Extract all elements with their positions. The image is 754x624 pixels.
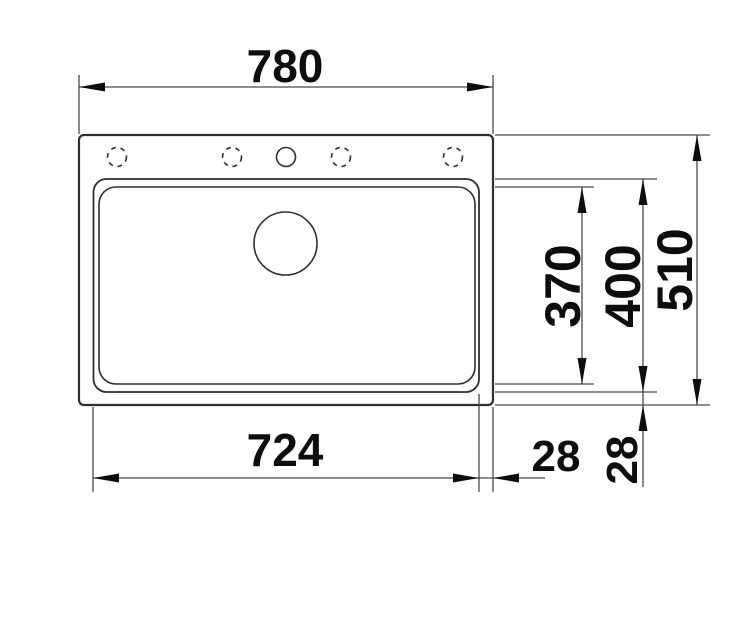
dimension-label-28-horizontal: 28	[532, 432, 581, 481]
dimension-overall-width: 780	[79, 40, 493, 134]
drain-hole	[254, 212, 317, 275]
bowl-inner-rim	[99, 187, 475, 384]
sink-outer-edge	[79, 135, 493, 405]
dimension-bowl-inner-depth: 370	[495, 187, 594, 384]
tap-hole-optional-3	[332, 148, 351, 167]
arrow-up-icon	[639, 179, 648, 205]
tap-hole-optional-2	[223, 148, 242, 167]
arrow-left-icon	[79, 83, 105, 92]
arrow-right-icon	[453, 474, 479, 483]
tap-hole-optional-4	[444, 148, 463, 167]
bowl-outer-rim	[94, 179, 480, 392]
arrow-down-icon	[639, 366, 648, 392]
dimension-bowl-width: 724 28	[93, 394, 580, 492]
dimension-label-28-vertical: 28	[598, 436, 647, 485]
dimension-ledge-vertical: 28	[598, 392, 648, 487]
arrow-up-icon	[639, 405, 648, 431]
arrow-up-icon	[693, 135, 702, 161]
tap-hole-row	[108, 148, 463, 167]
dimension-label-400: 400	[595, 244, 651, 327]
dimension-label-780: 780	[247, 40, 324, 92]
arrow-right-icon	[467, 83, 493, 92]
tap-hole-drilled-center	[277, 148, 296, 167]
sink-dimension-drawing: 780 724 28 510	[0, 0, 754, 624]
arrow-up-icon	[578, 187, 587, 213]
arrow-down-icon	[693, 379, 702, 405]
arrow-down-icon	[578, 358, 587, 384]
technical-drawing-canvas: 780 724 28 510	[0, 0, 754, 624]
dimension-label-724: 724	[247, 424, 324, 476]
arrow-left-icon	[93, 474, 119, 483]
dimension-label-510: 510	[647, 228, 703, 311]
dimension-label-370: 370	[535, 244, 591, 327]
sink-body	[79, 135, 493, 405]
tap-hole-optional-1	[108, 148, 127, 167]
arrow-left-icon	[493, 474, 519, 483]
